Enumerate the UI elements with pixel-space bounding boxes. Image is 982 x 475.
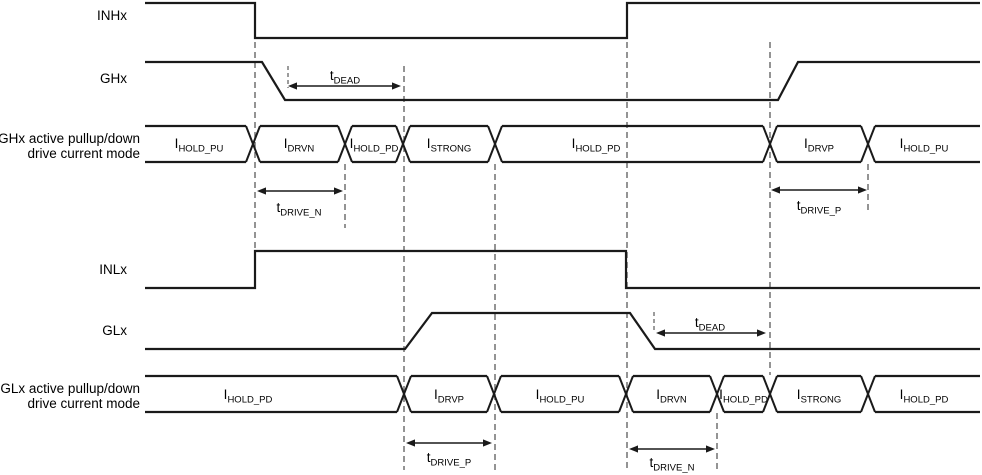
- signal-row-glx: GLx: [102, 313, 980, 349]
- bus-segment-label: IHOLD_PD: [900, 387, 949, 406]
- annotation-label: tDEAD: [695, 315, 725, 334]
- annotation-tdrive-n-bottom: tDRIVE_N: [629, 445, 715, 473]
- arrowhead-right: [706, 445, 715, 452]
- bus-row-glx-mode: IHOLD_PDIDRVPIHOLD_PUIDRVNIHOLD_PDISTRON…: [0, 376, 980, 412]
- bus-segment-label: IHOLD_PD: [224, 387, 273, 406]
- bus-segment-label: IHOLD_PU: [536, 387, 585, 406]
- arrowhead-left: [629, 445, 638, 452]
- bus-row-label: GHx active pullup/down: [0, 131, 140, 146]
- arrowhead-left: [771, 186, 780, 193]
- annotation-label: tDRIVE_N: [650, 455, 695, 474]
- annotation-tdead-top: tDEAD: [288, 66, 401, 90]
- signal-label-ghx: GHx: [100, 71, 127, 86]
- timing-diagram-figure: IHOLD_PUIDRVNIHOLD_PDISTRONGIHOLD_PDIDRV…: [0, 0, 982, 475]
- annotation-tdrive-p-top: tDRIVE_P: [771, 186, 867, 216]
- bus-segment-label: ISTRONG: [797, 387, 841, 406]
- annotation-label: tDRIVE_N: [277, 200, 322, 219]
- annotation-label: tDRIVE_P: [797, 198, 841, 217]
- annotation-label: tDEAD: [330, 68, 360, 87]
- annotation-tdead-bottom: tDEAD: [654, 312, 766, 337]
- bus-row-label: GLx active pullup/down: [0, 381, 140, 396]
- bus-segment-label: IDRVP: [804, 136, 834, 155]
- bus-segment-label: IHOLD_PD: [719, 387, 768, 406]
- bus-segment-label: ISTRONG: [427, 136, 471, 155]
- arrowhead-right: [483, 439, 492, 446]
- signal-label-inlx: INLx: [99, 262, 127, 277]
- bus-row-label: drive current mode: [27, 146, 140, 161]
- signal-row-ghx: GHx: [100, 62, 980, 100]
- waveform-ghx: [145, 62, 980, 100]
- annotation-label: tDRIVE_P: [427, 450, 471, 469]
- arrowhead-left: [288, 82, 297, 89]
- waveform-glx: [145, 313, 980, 349]
- arrowhead-left: [656, 329, 665, 336]
- signal-label-glx: GLx: [102, 323, 127, 338]
- bus-segment-label: IDRVN: [656, 387, 687, 406]
- arrowhead-right: [392, 82, 401, 89]
- bus-segment-label: IDRVN: [284, 136, 315, 155]
- bus-segment-label: IDRVP: [434, 387, 464, 406]
- bus-segment-label: IHOLD_PU: [175, 136, 224, 155]
- arrowhead-left: [406, 439, 415, 446]
- arrowhead-right: [334, 187, 343, 194]
- bus-segment-label: IHOLD_PD: [572, 136, 621, 155]
- bus-segment-label: IHOLD_PD: [350, 136, 399, 155]
- signal-row-inhx: INHx: [97, 3, 980, 38]
- waveform-inlx: [145, 251, 980, 288]
- bus-row-ghx-mode: IHOLD_PUIDRVNIHOLD_PDISTRONGIHOLD_PDIDRV…: [0, 126, 980, 162]
- bus-segment-label: IHOLD_PU: [900, 136, 949, 155]
- arrowhead-left: [257, 187, 266, 194]
- annotation-tdrive-n-top: tDRIVE_N: [257, 187, 343, 218]
- signal-label-inhx: INHx: [97, 8, 127, 23]
- arrowhead-right: [757, 329, 766, 336]
- bus-row-label: drive current mode: [27, 396, 140, 411]
- annotation-tdrive-p-bottom: tDRIVE_P: [406, 439, 492, 468]
- timing-diagram-svg: IHOLD_PUIDRVNIHOLD_PDISTRONGIHOLD_PDIDRV…: [0, 0, 982, 475]
- arrowhead-right: [858, 186, 867, 193]
- waveform-inhx: [145, 3, 980, 38]
- signal-row-inlx: INLx: [99, 251, 980, 288]
